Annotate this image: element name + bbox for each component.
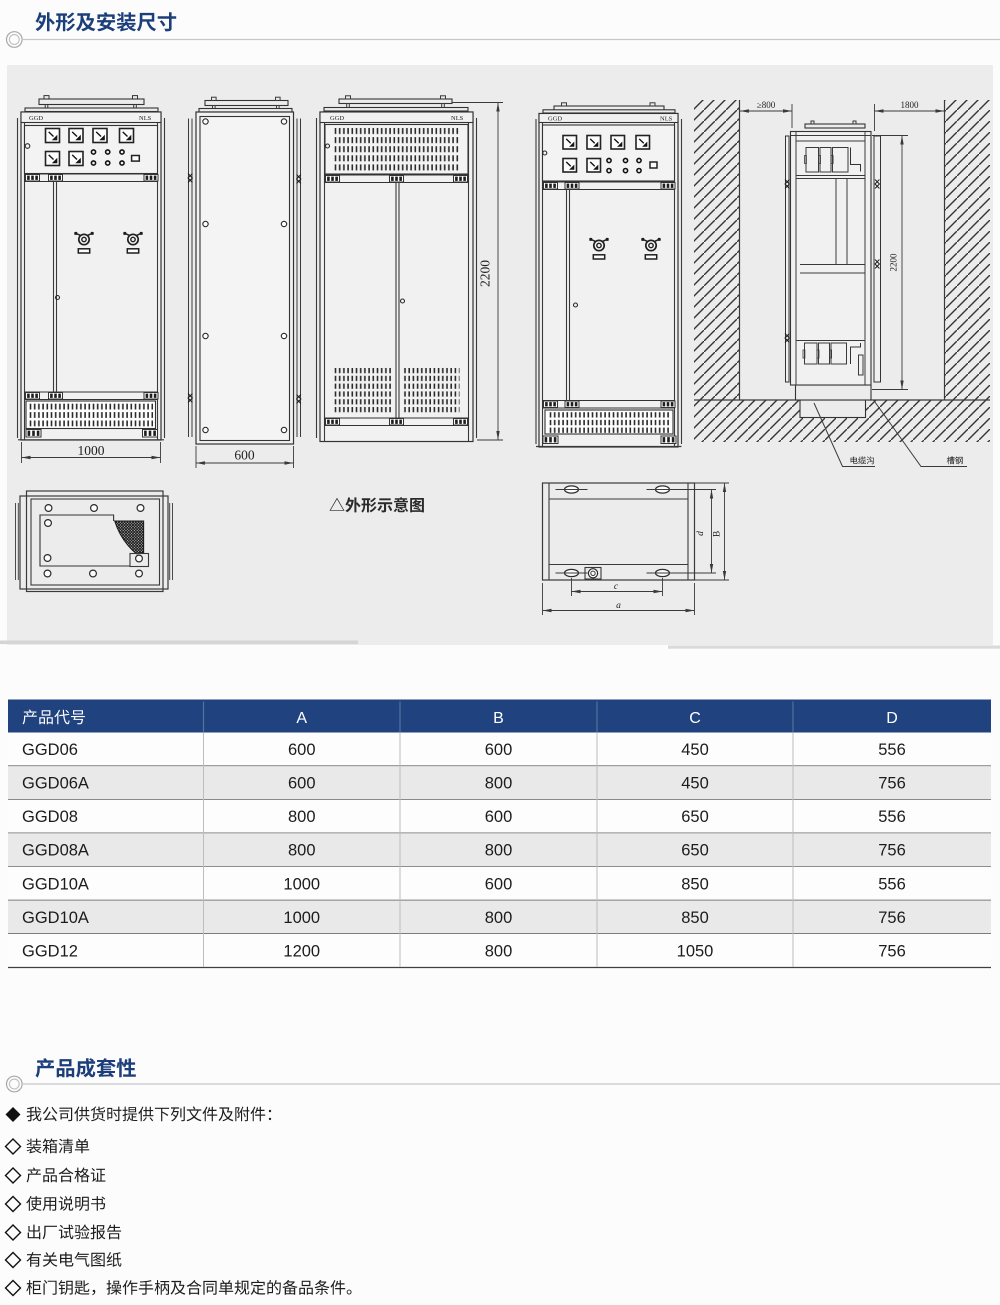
svg-text:GGD06: GGD06 xyxy=(22,741,78,759)
svg-text:A: A xyxy=(296,710,307,727)
svg-text:GGD08: GGD08 xyxy=(22,808,78,826)
svg-text:1200: 1200 xyxy=(283,942,320,960)
svg-text:650: 650 xyxy=(681,808,709,826)
svg-text:GGD06A: GGD06A xyxy=(22,775,89,793)
svg-text:756: 756 xyxy=(878,775,906,793)
svg-text:GGD10A: GGD10A xyxy=(22,875,89,893)
svg-text:800: 800 xyxy=(288,842,316,860)
svg-text:756: 756 xyxy=(878,942,906,960)
svg-text:600: 600 xyxy=(234,448,255,463)
svg-text:a: a xyxy=(616,601,621,611)
svg-text:C: C xyxy=(689,710,701,727)
svg-text:NLS: NLS xyxy=(139,115,152,122)
svg-text:600: 600 xyxy=(288,775,316,793)
svg-text:1050: 1050 xyxy=(677,942,714,960)
svg-text:d: d xyxy=(696,531,706,536)
svg-text:650: 650 xyxy=(681,842,709,860)
svg-text:NLS: NLS xyxy=(660,116,673,123)
svg-text:850: 850 xyxy=(681,875,709,893)
svg-text:756: 756 xyxy=(878,842,906,860)
svg-text:2200: 2200 xyxy=(478,260,493,287)
svg-text:2200: 2200 xyxy=(889,253,899,272)
svg-text:600: 600 xyxy=(485,741,513,759)
svg-text:556: 556 xyxy=(878,808,906,826)
svg-text:1000: 1000 xyxy=(283,875,320,893)
svg-text:600: 600 xyxy=(485,875,513,893)
svg-text:1800: 1800 xyxy=(901,100,920,110)
svg-text:B: B xyxy=(713,531,723,537)
svg-text:850: 850 xyxy=(681,909,709,927)
svg-text:D: D xyxy=(886,710,898,727)
svg-text:800: 800 xyxy=(485,775,513,793)
svg-text:600: 600 xyxy=(288,741,316,759)
svg-text:GGD08A: GGD08A xyxy=(22,842,89,860)
svg-text:NLS: NLS xyxy=(451,115,464,122)
svg-text:756: 756 xyxy=(878,909,906,927)
svg-text:≥800: ≥800 xyxy=(757,100,776,110)
svg-text:556: 556 xyxy=(878,741,906,759)
svg-text:1000: 1000 xyxy=(283,909,320,927)
svg-text:450: 450 xyxy=(681,741,709,759)
svg-text:800: 800 xyxy=(485,909,513,927)
svg-text:1000: 1000 xyxy=(78,443,105,458)
svg-text:GGD: GGD xyxy=(548,116,562,123)
svg-text:800: 800 xyxy=(288,808,316,826)
svg-text:600: 600 xyxy=(485,808,513,826)
svg-text:GGD10A: GGD10A xyxy=(22,909,89,927)
svg-text:556: 556 xyxy=(878,875,906,893)
svg-text:B: B xyxy=(493,710,504,727)
svg-text:450: 450 xyxy=(681,775,709,793)
svg-text:800: 800 xyxy=(485,942,513,960)
svg-text:800: 800 xyxy=(485,842,513,860)
svg-text:GGD: GGD xyxy=(29,115,43,122)
svg-text:GGD: GGD xyxy=(330,115,344,122)
svg-text:GGD12: GGD12 xyxy=(22,942,78,960)
